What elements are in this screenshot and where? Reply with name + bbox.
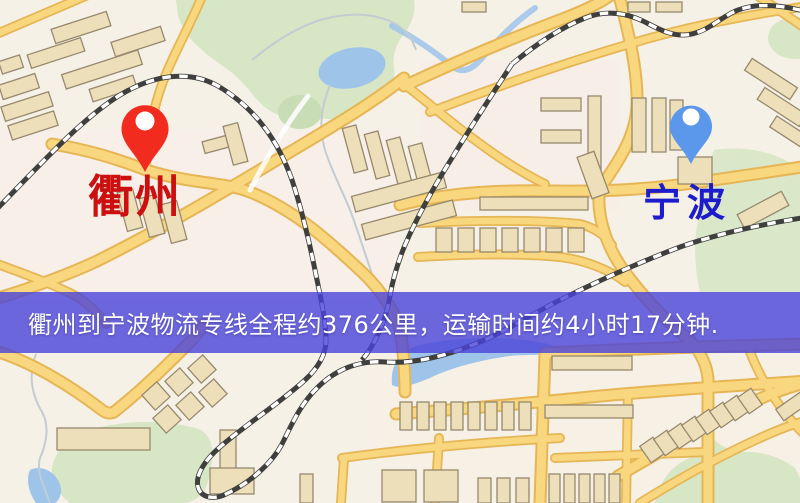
ningbo-label: 宁波	[643, 184, 731, 222]
route-info-text: 衢州到宁波物流专线全程约376公里，运输时间约4小时17分钟.	[28, 305, 719, 340]
pin-hole	[136, 112, 155, 131]
quzhou-label: 衢州	[88, 174, 182, 219]
route-info-banner: 衢州到宁波物流专线全程约376公里，运输时间约4小时17分钟.	[0, 292, 800, 353]
map-canvas[interactable]	[0, 0, 800, 503]
ningbo-pin[interactable]	[670, 106, 712, 164]
map-view: 衢州 宁波 衢州到宁波物流专线全程约376公里，运输时间约4小时17分钟.	[0, 0, 800, 503]
pin-hole	[683, 109, 700, 126]
